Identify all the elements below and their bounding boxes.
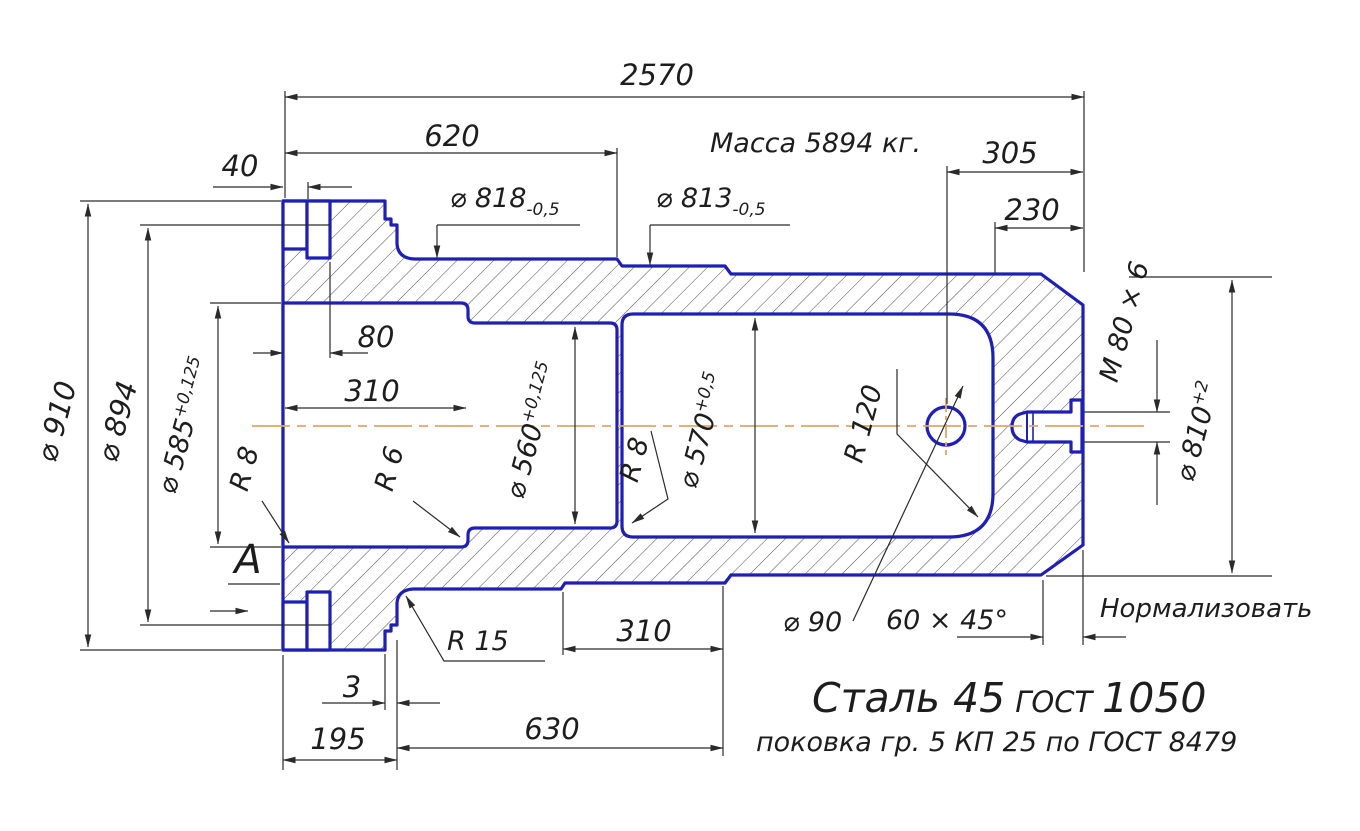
material-line: Сталь 45ГОСТ1050 — [812, 674, 1207, 722]
chamfer-label: 60 × 45° — [886, 605, 1008, 636]
radius-r15-label: R 15 — [447, 626, 509, 657]
dim-90-label: ⌀ 90 — [783, 607, 842, 638]
dim-585-value: ⌀ 585 — [152, 415, 202, 497]
dim-40 — [213, 182, 352, 199]
normalize-note: Нормализовать — [1100, 594, 1312, 624]
dim-310-bottom-label: 310 — [616, 614, 671, 648]
dim-630 — [397, 640, 723, 770]
thread-label: M 80 × 6 — [1094, 258, 1156, 385]
drawing-canvas: 2570 620 40 Масса 5894 кг. 305 230 ⌀ 818… — [0, 0, 1360, 831]
flange-slot-top — [307, 201, 330, 258]
mass-note: Масса 5894 кг. — [710, 128, 921, 159]
dim-2570-label: 2570 — [620, 58, 694, 92]
dim-585 — [210, 303, 281, 547]
dim-310-bore-label: 310 — [344, 374, 399, 408]
dim-585-label: ⌀ 585+0,125 — [150, 354, 218, 497]
dim-2570 — [285, 91, 1084, 272]
dim-230-label: 230 — [1004, 193, 1059, 227]
dim-305-label: 305 — [982, 136, 1037, 170]
dim-80-label: 80 — [358, 320, 395, 354]
dim-230 — [995, 222, 1083, 273]
dim-3 — [322, 654, 440, 710]
dim-810-tol: +2 — [1188, 378, 1214, 407]
dim-620-label: 620 — [424, 119, 479, 153]
dim-195-label: 195 — [310, 722, 365, 756]
leader-813 — [650, 225, 790, 265]
dim-813-value: ⌀ 813 — [656, 183, 732, 214]
material-gost-num: 1050 — [1102, 674, 1206, 722]
view-a-arrow — [210, 584, 280, 611]
flange-groove-bottom-outer — [283, 602, 307, 650]
dim-3-label: 3 — [343, 670, 361, 704]
view-a-label: А — [231, 537, 261, 583]
dim-40-label: 40 — [222, 149, 259, 183]
dim-310-bottom — [563, 586, 723, 756]
dim-818-label: ⌀ 818-0,5 — [450, 183, 560, 220]
material-gost: ГОСТ — [1015, 685, 1094, 719]
dim-810-label: ⌀ 810+2 — [1168, 378, 1226, 485]
material-name: Сталь 45 — [812, 674, 1005, 722]
dim-818-value: ⌀ 818 — [450, 183, 526, 214]
flange-slot-bottom — [307, 592, 330, 650]
dim-818-tol: -0,5 — [526, 200, 559, 220]
dim-630-label: 630 — [524, 712, 579, 746]
dim-810-value: ⌀ 810 — [1170, 403, 1220, 485]
dim-585-tol: +0,125 — [170, 354, 206, 420]
dim-910-label: ⌀ 910 — [29, 377, 83, 465]
dim-813-label: ⌀ 813-0,5 — [656, 183, 766, 220]
leader-818 — [437, 225, 580, 258]
bore-585-560 — [283, 303, 617, 547]
dim-894-label: ⌀ 894 — [90, 377, 144, 465]
engineering-drawing: 2570 620 40 Масса 5894 кг. 305 230 ⌀ 818… — [0, 0, 1360, 831]
forging-spec: поковка гр. 5 КП 25 по ГОСТ 8479 — [756, 727, 1237, 758]
radius-r8-left-label: R 8 — [224, 443, 265, 494]
dim-813-tol: -0,5 — [732, 200, 765, 220]
